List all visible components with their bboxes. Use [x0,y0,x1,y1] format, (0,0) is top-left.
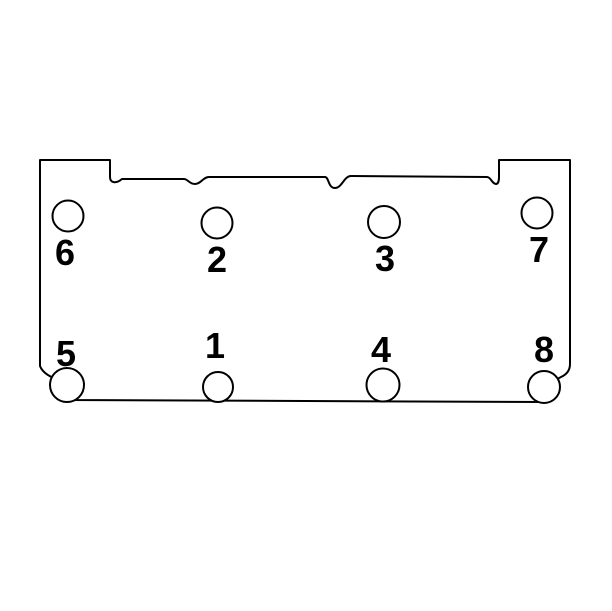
bolt-number-6: 6 [55,232,75,273]
diagram-canvas: 1 2 3 4 5 6 7 [0,0,612,611]
bolt-number-8: 8 [534,329,554,370]
bolt-hole-8 [528,371,560,403]
cylinder-head-outline [40,160,570,402]
bolt-hole-4 [367,369,400,402]
bolt-number-5: 5 [56,333,76,374]
head-bolt-sequence-diagram: 1 2 3 4 5 6 7 [0,0,612,611]
bolt-number-1: 1 [205,325,225,366]
bolt-number-4: 4 [371,329,391,370]
bolt-hole-2 [202,208,233,239]
bolt-number-3: 3 [375,238,395,279]
bolt-hole-1 [203,372,233,402]
bolt-number-7: 7 [529,229,549,270]
bolt-hole-3 [368,206,400,238]
bolt-number-2: 2 [207,239,227,280]
bolt-hole-7 [522,198,553,229]
bolt-hole-6 [53,201,84,232]
